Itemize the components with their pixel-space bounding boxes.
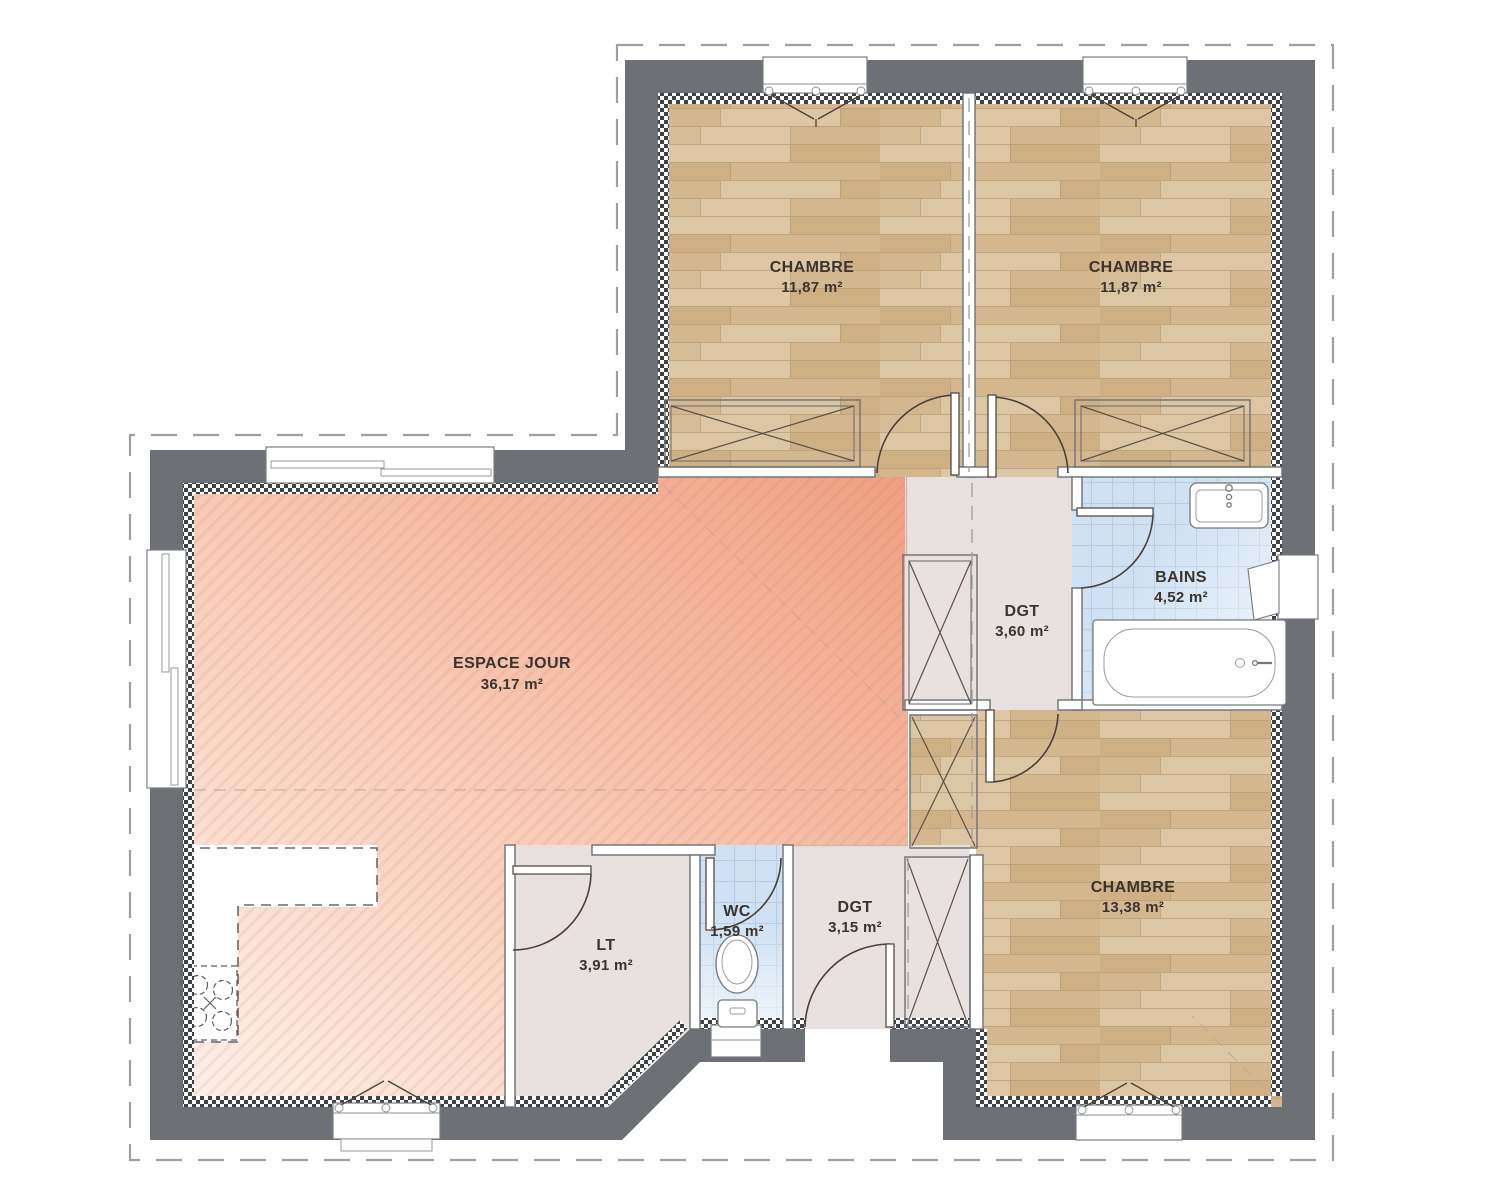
label-dgt-haut-area: 3,60 m² <box>995 623 1049 640</box>
label-dgt-entree-name: DGT <box>838 899 873 916</box>
label-dgt-entree-area: 3,15 m² <box>828 919 882 936</box>
bathtub-icon <box>1093 620 1286 705</box>
floor-plan: CHAMBRE 11,87 m² CHAMBRE 11,87 m² ESPACE… <box>0 0 1500 1200</box>
label-wc-area: 1,59 m² <box>710 923 764 940</box>
label-chambre-1-name: CHAMBRE <box>770 259 855 276</box>
label-bains-name: BAINS <box>1155 569 1207 586</box>
room-dgt-entree-floor <box>793 845 970 1029</box>
toilet-icon <box>716 935 758 1027</box>
sink-icon <box>1190 483 1268 528</box>
wall-porch-north-right <box>890 1029 976 1062</box>
label-chambre-2-area: 11,87 m² <box>1100 279 1162 296</box>
wall-west-bedrooms <box>625 60 658 483</box>
window-baie-ouest <box>147 550 186 788</box>
label-lt-area: 3,91 m² <box>579 957 633 974</box>
label-chambre-3-area: 13,38 m² <box>1102 899 1164 916</box>
window-baie-nord <box>266 447 494 483</box>
label-espace-jour-area: 36,17 m² <box>481 676 543 693</box>
label-espace-jour-name: ESPACE JOUR <box>453 655 571 672</box>
room-dgt-haut-floor <box>905 477 1072 710</box>
label-chambre-2-name: CHAMBRE <box>1089 259 1174 276</box>
label-chambre-1-area: 11,87 m² <box>781 279 843 296</box>
label-dgt-haut-name: DGT <box>1005 603 1040 620</box>
label-bains-area: 4,52 m² <box>1154 589 1208 606</box>
label-wc-name: WC <box>723 903 751 920</box>
label-lt-name: LT <box>596 937 615 954</box>
floor-plan-page: CHAMBRE 11,87 m² CHAMBRE 11,87 m² ESPACE… <box>0 0 1500 1200</box>
label-chambre-3-name: CHAMBRE <box>1091 879 1176 896</box>
wall-north <box>625 60 1315 93</box>
